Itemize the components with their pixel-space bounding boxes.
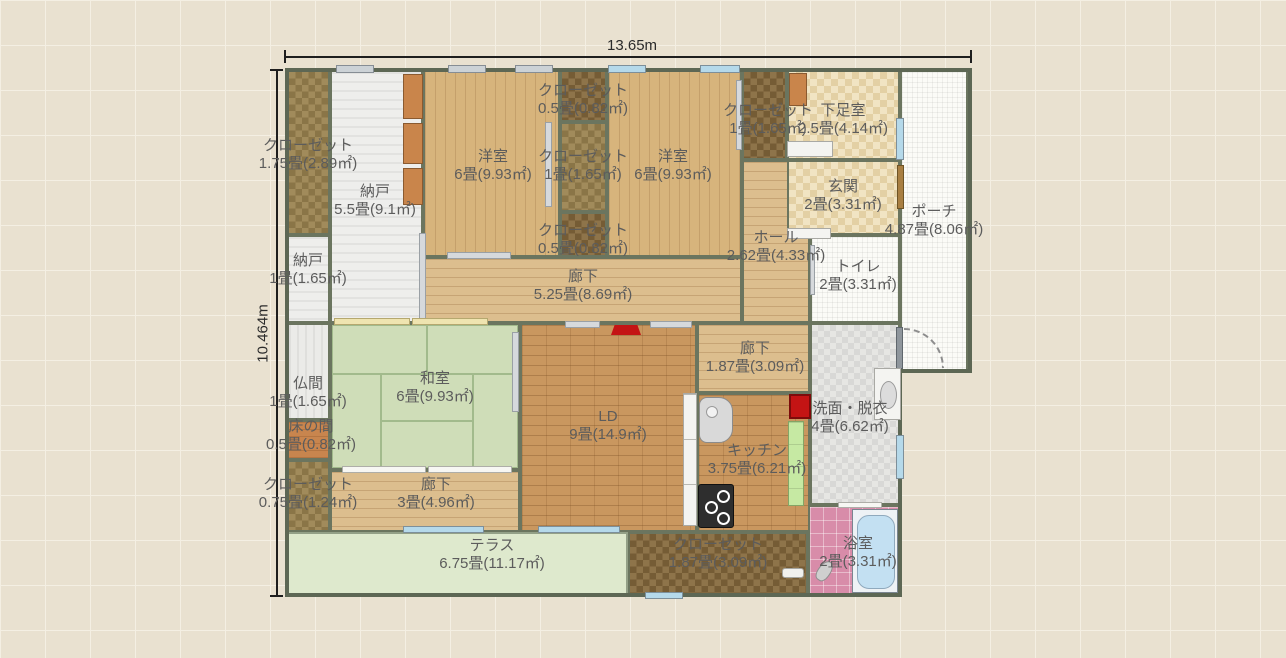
sliding-door-icon[interactable] — [512, 332, 519, 412]
room-label-corridor-east: 廊下1.87畳(3.09㎡) — [706, 340, 804, 377]
shoe-cabinet-icon[interactable] — [787, 141, 833, 157]
room-label-washroom: 洗面・脱衣4畳(6.62㎡) — [811, 400, 889, 437]
dimension-width-label: 13.65m — [607, 37, 657, 54]
tatami-mat — [427, 325, 518, 374]
floor-plan-canvas: 13.65m 10.464m クローゼット1.75畳(2.89㎡) 納戸5.5畳… — [0, 0, 1286, 658]
dimension-tick — [270, 69, 283, 71]
sliding-door-icon[interactable] — [412, 318, 488, 325]
window-icon[interactable] — [645, 592, 683, 599]
window-icon[interactable] — [336, 65, 374, 73]
tv-icon[interactable] — [611, 325, 641, 335]
sliding-door-icon[interactable] — [650, 321, 692, 328]
sliding-door-icon[interactable] — [342, 466, 426, 473]
dimension-tick — [270, 595, 283, 597]
window-icon[interactable] — [896, 118, 904, 160]
kitchen-counter-icon[interactable] — [683, 393, 697, 526]
room-label-porch: ポーチ4.87畳(8.06㎡) — [885, 203, 983, 240]
room-label-kitchen: キッチン3.75畳(6.21㎡) — [708, 442, 806, 479]
room-label-toilet: トイレ2畳(3.31㎡) — [819, 258, 897, 295]
window-icon[interactable] — [448, 65, 486, 73]
sliding-door-icon[interactable] — [428, 466, 512, 473]
room-label-bathroom: 浴室2畳(3.31㎡) — [819, 535, 897, 572]
window-icon[interactable] — [538, 526, 620, 533]
shelf-icon[interactable] — [403, 123, 423, 164]
room-label-closet-center: クローゼット1畳(1.65㎡) — [538, 148, 628, 185]
room-label-corridor-main: 廊下5.25畳(8.69㎡) — [534, 268, 632, 305]
room-label-corridor-south: 廊下3畳(4.96㎡) — [397, 476, 475, 513]
bath-stool-icon — [782, 568, 804, 578]
room-label-closet-south: クローゼット1.87畳(3.09㎡) — [669, 536, 767, 573]
room-label-storage-small: 納戸1畳(1.65㎡) — [269, 252, 347, 289]
room-label-closet-top: クローゼット0.5畳(0.82㎡) — [538, 82, 628, 119]
sliding-door-icon[interactable] — [334, 318, 410, 325]
window-icon[interactable] — [403, 526, 484, 533]
sink-icon[interactable] — [699, 397, 733, 443]
room-label-storage-large: 納戸5.5畳(9.1㎡) — [334, 183, 416, 220]
exterior-wall — [285, 593, 902, 597]
shelf-icon[interactable] — [403, 74, 423, 119]
room-label-closet-nw: クローゼット1.75畳(2.89㎡) — [259, 137, 357, 174]
window-icon[interactable] — [700, 65, 740, 73]
dimension-tick — [970, 50, 972, 63]
window-icon[interactable] — [896, 435, 904, 479]
room-label-western-left: 洋室6畳(9.93㎡) — [454, 148, 532, 185]
room-label-terrace: テラス6.75畳(11.17㎡) — [439, 537, 545, 574]
room-label-closet-sw: クローゼット0.75畳(1.24㎡) — [259, 476, 357, 513]
window-icon[interactable] — [515, 65, 553, 73]
sliding-door-icon[interactable] — [419, 233, 426, 319]
sliding-door-icon[interactable] — [447, 252, 511, 259]
room-label-closet-center-bottom: クローゼット0.5畳(0.82㎡) — [538, 222, 628, 259]
room-label-washitsu: 和室6畳(9.93㎡) — [396, 370, 474, 407]
dimension-height-label: 10.464m — [255, 304, 272, 364]
room-label-tokonoma: 床の間0.5畳(0.82㎡) — [266, 418, 356, 455]
stove-icon[interactable] — [698, 484, 734, 528]
sliding-door-icon[interactable] — [838, 502, 882, 508]
fridge-icon[interactable] — [789, 394, 811, 419]
tatami-mat — [381, 421, 473, 468]
room-label-butsuma: 仏間1畳(1.65㎡) — [269, 375, 347, 412]
sliding-door-icon[interactable] — [565, 321, 600, 328]
window-icon[interactable] — [608, 65, 646, 73]
room-label-living-dining: LD9畳(14.9㎡) — [569, 408, 647, 445]
exterior-wall — [898, 369, 972, 373]
room-label-shoe-room: 下足室2.5畳(4.14㎡) — [798, 102, 888, 139]
room-label-western-right: 洋室6畳(9.93㎡) — [634, 148, 712, 185]
room-label-entrance: 玄関2畳(3.31㎡) — [804, 178, 882, 215]
room-label-hall: ホール2.62畳(4.33㎡) — [727, 229, 825, 266]
tatami-mat — [332, 325, 427, 374]
swing-door-icon[interactable] — [896, 327, 903, 369]
dimension-tick — [284, 50, 286, 63]
dimension-line-top — [285, 56, 972, 58]
